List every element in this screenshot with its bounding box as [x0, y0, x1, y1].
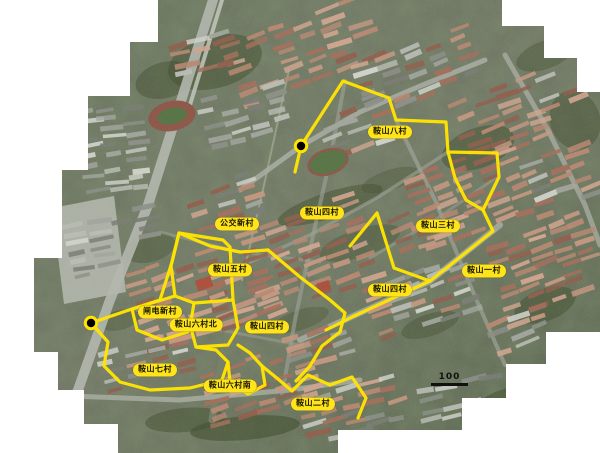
location-marker	[84, 316, 98, 330]
scale-bar: 100	[431, 372, 468, 386]
district-label: 鞍山五村	[208, 264, 252, 277]
district-label: 鞍山六村北	[170, 319, 223, 332]
district-label: 闸电新村	[138, 306, 182, 319]
district-label: 鞍山四村	[245, 321, 289, 334]
map-canvas: 鞍山八村公交新村鞍山四村鞍山三村鞍山五村鞍山一村鞍山四村闸电新村鞍山六村北鞍山四…	[0, 0, 600, 453]
district-label: 鞍山二村	[291, 398, 335, 411]
district-label: 鞍山四村	[300, 207, 344, 220]
district-label: 鞍山八村	[368, 126, 412, 139]
district-label: 公交新村	[215, 218, 259, 231]
district-label: 鞍山四村	[368, 284, 412, 297]
scale-bar-line	[431, 383, 468, 386]
satellite-map	[0, 0, 600, 453]
district-label: 鞍山七村	[133, 364, 177, 377]
location-marker	[294, 139, 308, 153]
scale-bar-label: 100	[431, 372, 468, 382]
district-label: 鞍山六村南	[204, 380, 257, 393]
district-label: 鞍山一村	[462, 265, 506, 278]
district-label: 鞍山三村	[416, 220, 460, 233]
